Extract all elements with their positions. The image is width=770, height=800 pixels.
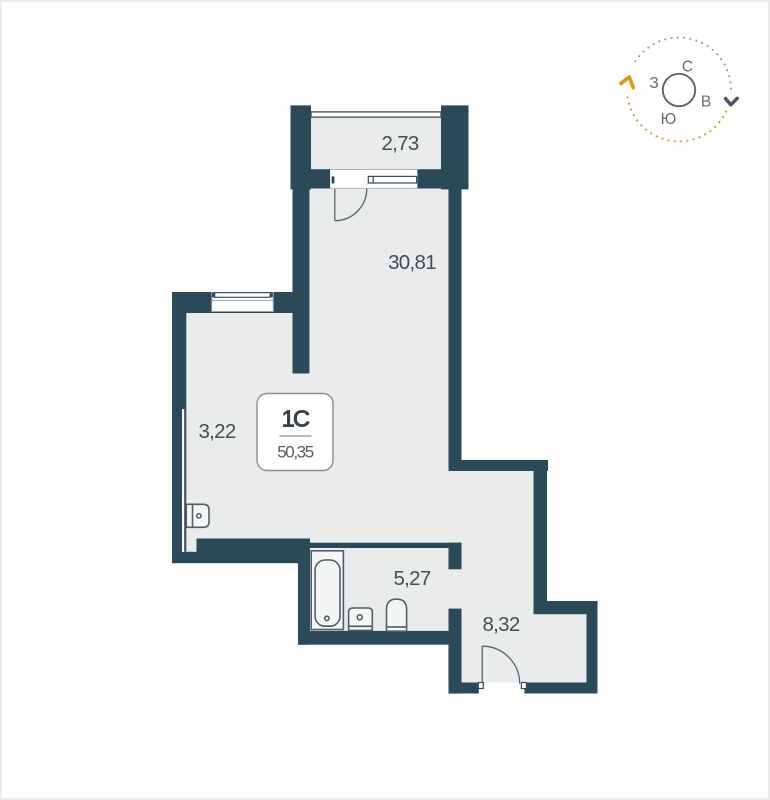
svg-text:1С: 1С (282, 406, 310, 432)
svg-text:30,81: 30,81 (388, 251, 436, 274)
svg-text:З: З (649, 75, 658, 92)
svg-text:8,32: 8,32 (482, 613, 519, 636)
svg-text:50,35: 50,35 (277, 443, 313, 462)
svg-text:3,22: 3,22 (198, 420, 235, 443)
svg-text:5,27: 5,27 (393, 567, 430, 590)
svg-text:Ю: Ю (661, 111, 677, 128)
svg-text:С: С (682, 59, 693, 76)
svg-text:В: В (701, 94, 711, 111)
svg-text:2,73: 2,73 (381, 132, 418, 155)
